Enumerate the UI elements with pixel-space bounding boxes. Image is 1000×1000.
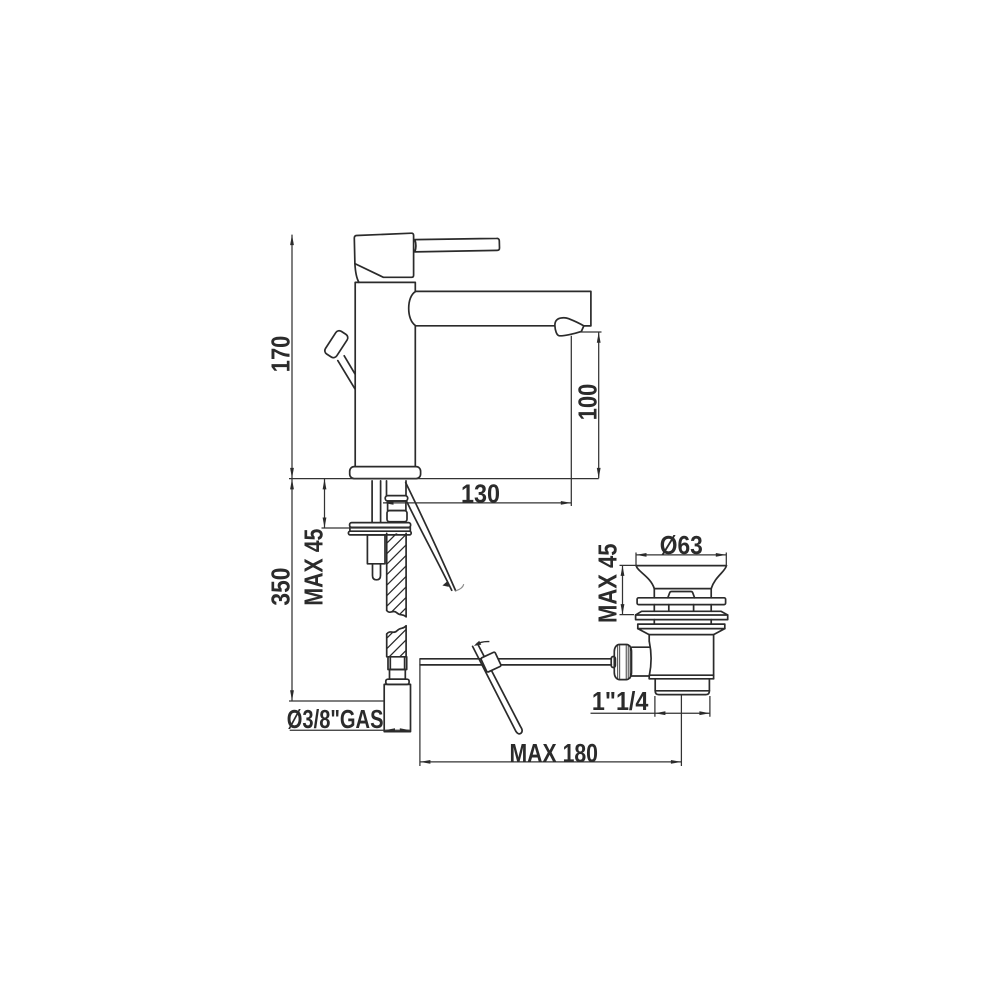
svg-text:170: 170 (265, 336, 295, 373)
svg-text:MAX 45: MAX 45 (298, 529, 328, 606)
svg-text:130: 130 (461, 478, 500, 508)
svg-text:1"1/4: 1"1/4 (592, 686, 649, 716)
svg-text:MAX 45: MAX 45 (592, 544, 622, 624)
svg-text:100: 100 (572, 384, 602, 421)
svg-text:MAX 180: MAX 180 (510, 738, 599, 768)
svg-text:Ø63: Ø63 (660, 530, 703, 560)
svg-text:350: 350 (265, 568, 295, 606)
svg-text:Ø3/8"GAS: Ø3/8"GAS (287, 704, 384, 734)
